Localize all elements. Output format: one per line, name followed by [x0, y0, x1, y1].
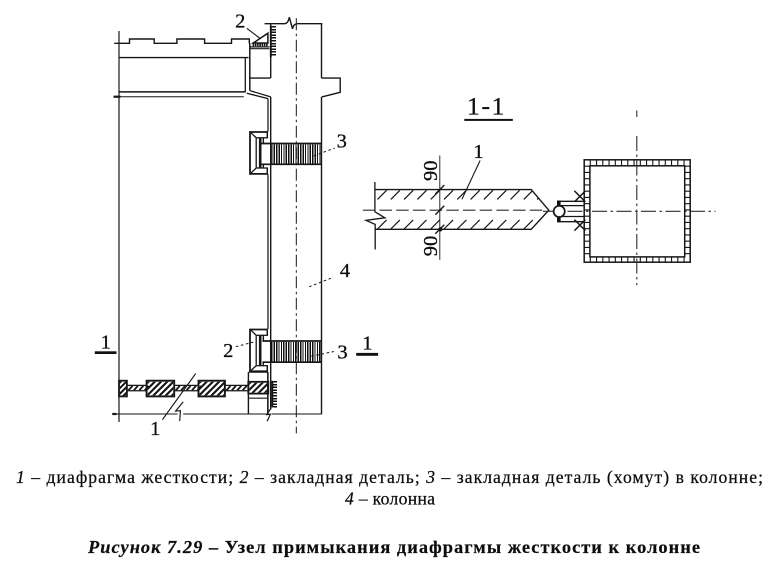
svg-text:1: 1	[473, 141, 483, 163]
svg-text:1: 1	[467, 92, 480, 121]
svg-text:2: 2	[223, 340, 233, 362]
svg-text:3: 3	[337, 130, 347, 152]
svg-text:1: 1	[362, 332, 372, 354]
svg-text:90: 90	[420, 160, 442, 181]
svg-text:90: 90	[420, 236, 442, 257]
svg-text:1: 1	[150, 418, 160, 440]
svg-text:4: 4	[340, 260, 350, 282]
svg-text:1 – диафрагма жесткости; 2 – з: 1 – диафрагма жесткости; 2 – закладная д…	[16, 467, 763, 487]
svg-text:1: 1	[101, 332, 111, 354]
svg-text:1: 1	[492, 92, 505, 121]
svg-text:-: -	[482, 91, 491, 120]
svg-text:2: 2	[235, 10, 245, 32]
svg-text:Рисунок 7.29 – Узел примыкания: Рисунок 7.29 – Узел примыкания диафрагмы…	[87, 537, 700, 557]
svg-text:3: 3	[337, 341, 347, 363]
svg-text:4 – колонна: 4 – колонна	[345, 489, 435, 509]
